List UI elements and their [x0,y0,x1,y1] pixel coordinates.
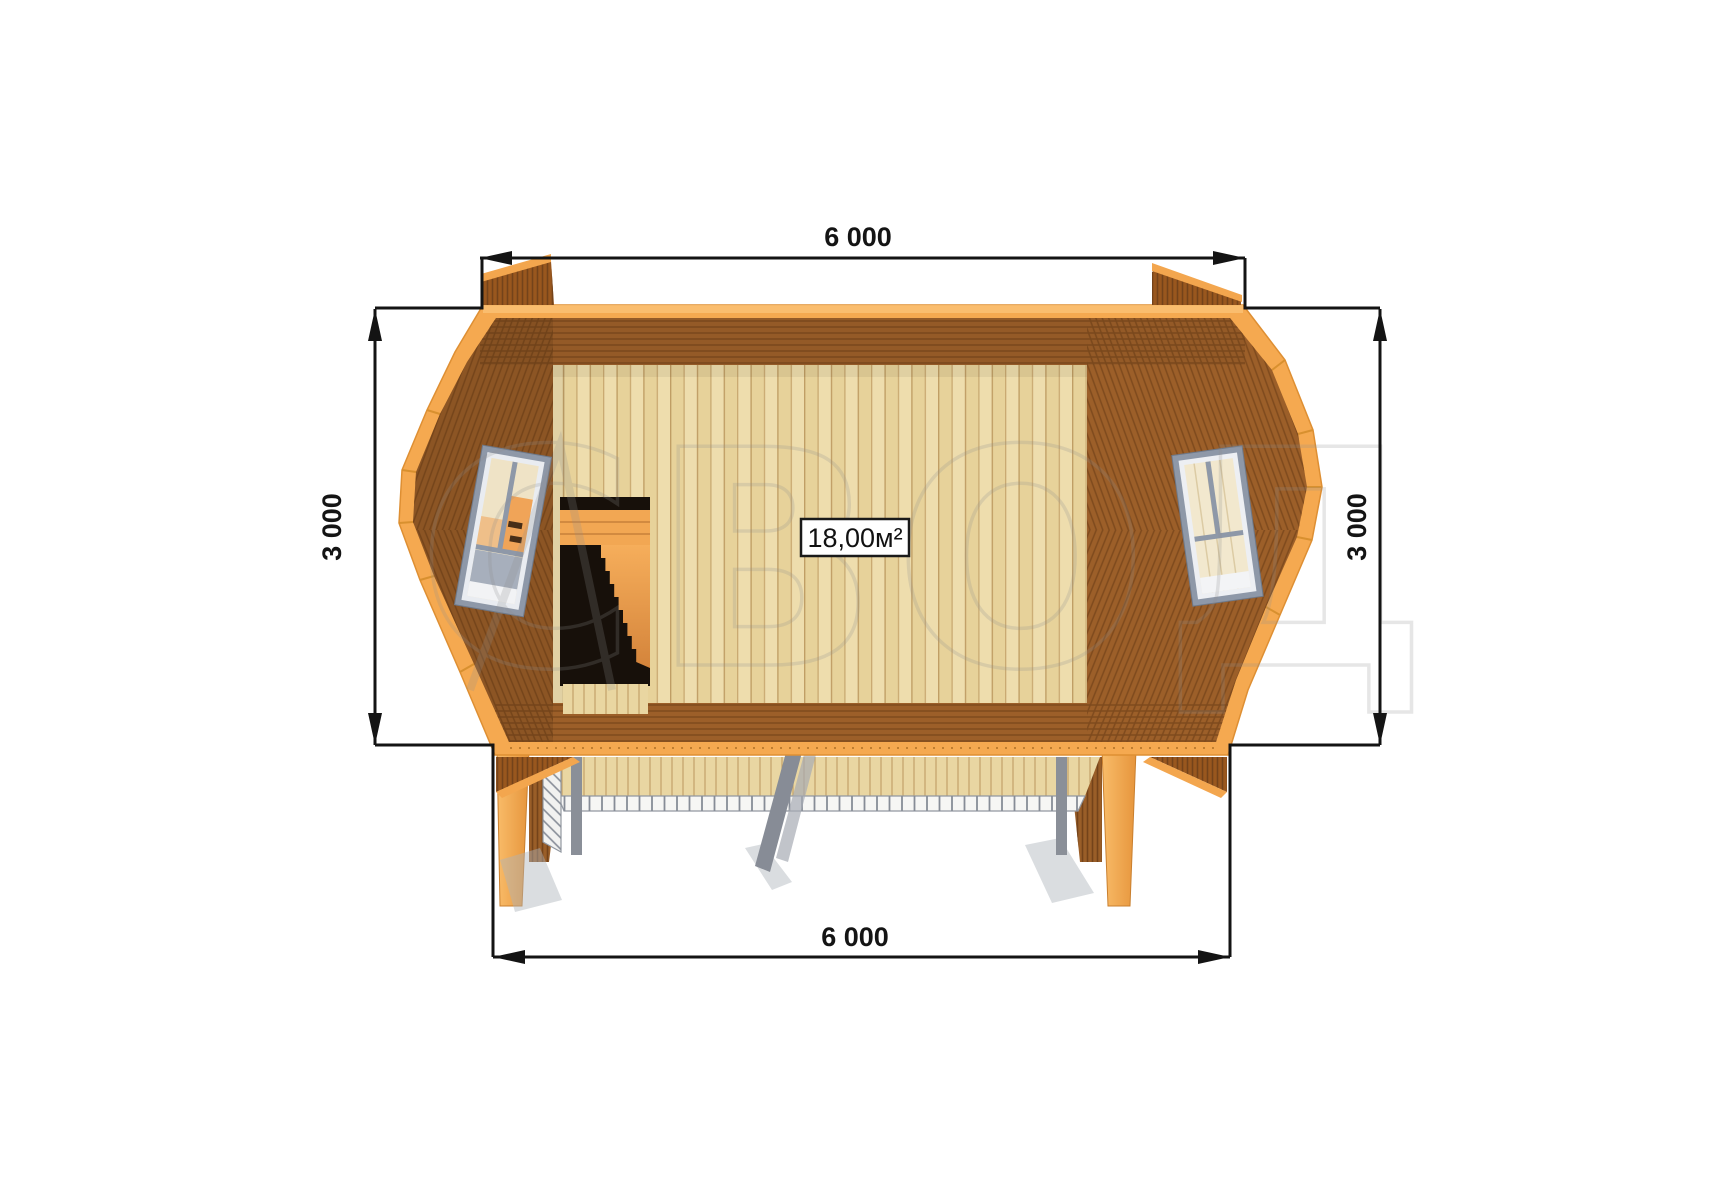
floor-plan-image: СВОД 18,00м² 6 000 6 000 3 000 3 000 [0,0,1728,1203]
area-label-text: 18,00м² [807,523,902,553]
porch-post-left [571,757,582,855]
floor-plan-page: СВОД 18,00м² 6 000 6 000 3 000 3 000 [0,0,1728,1203]
top-dimension-label: 6 000 [824,222,892,252]
bottom-dimension-label: 6 000 [821,922,889,952]
area-label: 18,00м² [801,519,909,556]
porch-deck [540,757,1100,796]
porch-post-right [1056,757,1067,855]
porch-railing-bottom [558,796,1085,811]
watermark-text: СВОД [416,387,1443,736]
porch-right-leg [1102,750,1136,906]
watermark: СВОД [416,387,1443,736]
right-dimension-label: 3 000 [1342,493,1372,561]
top-rim-highlight [483,305,1243,313]
left-dimension-label: 3 000 [317,493,347,561]
